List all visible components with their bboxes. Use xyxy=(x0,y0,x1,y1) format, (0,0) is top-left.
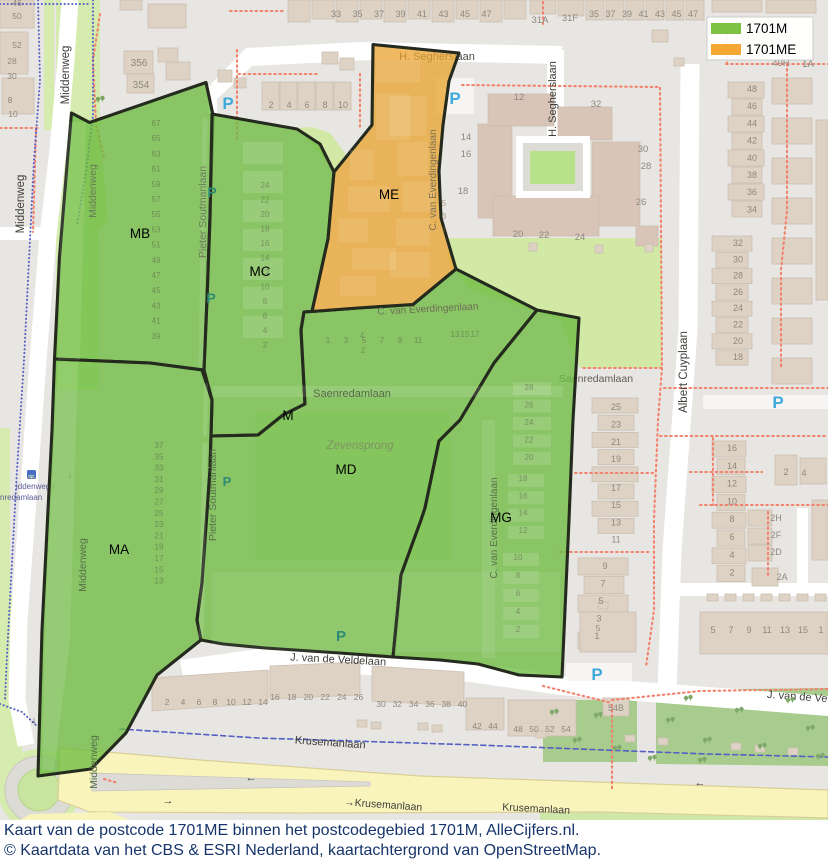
svg-text:34: 34 xyxy=(409,699,419,709)
svg-text:C. van Everdingenlaan: C. van Everdingenlaan xyxy=(428,129,439,230)
svg-text:22: 22 xyxy=(261,196,270,205)
svg-text:45: 45 xyxy=(152,286,161,295)
svg-text:2: 2 xyxy=(165,697,170,707)
svg-text:P: P xyxy=(449,89,460,108)
svg-text:P: P xyxy=(206,290,215,306)
svg-text:12: 12 xyxy=(242,697,252,707)
svg-text:19: 19 xyxy=(155,543,164,552)
svg-text:32: 32 xyxy=(393,699,403,709)
svg-text:30: 30 xyxy=(733,254,743,264)
svg-text:MB: MB xyxy=(130,226,150,241)
svg-text:P: P xyxy=(591,665,602,684)
svg-text:10: 10 xyxy=(226,697,236,707)
svg-text:48: 48 xyxy=(513,724,523,734)
svg-text:26: 26 xyxy=(354,692,364,702)
svg-text:34: 34 xyxy=(747,204,757,214)
svg-text:28: 28 xyxy=(641,161,652,172)
svg-text:27: 27 xyxy=(155,498,164,507)
svg-text:36: 36 xyxy=(747,187,757,197)
svg-text:2: 2 xyxy=(783,467,788,477)
svg-text:3: 3 xyxy=(344,336,349,345)
svg-text:9: 9 xyxy=(746,625,751,635)
svg-text:43: 43 xyxy=(438,9,448,19)
svg-text:356: 356 xyxy=(131,58,148,69)
svg-text:55: 55 xyxy=(152,210,161,219)
svg-text:6: 6 xyxy=(263,312,268,321)
svg-text:2: 2 xyxy=(729,568,734,578)
svg-text:24: 24 xyxy=(525,418,534,427)
svg-text:41: 41 xyxy=(417,9,427,19)
svg-text:54B: 54B xyxy=(608,703,624,713)
svg-text:22: 22 xyxy=(733,320,743,330)
svg-text:Pieter Soutmanlaan: Pieter Soutmanlaan xyxy=(207,449,219,541)
svg-text:28: 28 xyxy=(525,383,534,392)
svg-text:MG: MG xyxy=(490,510,512,525)
svg-text:31A: 31A xyxy=(532,15,550,26)
svg-text:28: 28 xyxy=(7,56,17,66)
svg-text:8: 8 xyxy=(213,697,218,707)
svg-text:39: 39 xyxy=(395,9,405,19)
svg-text:5: 5 xyxy=(442,199,447,208)
svg-text:11: 11 xyxy=(611,535,620,545)
svg-text:16: 16 xyxy=(519,491,528,500)
svg-text:17: 17 xyxy=(471,330,480,339)
svg-text:63: 63 xyxy=(152,149,161,158)
svg-text:7: 7 xyxy=(380,336,385,345)
svg-text:2: 2 xyxy=(516,625,521,634)
svg-text:6: 6 xyxy=(304,100,309,110)
svg-text:5: 5 xyxy=(598,596,603,606)
svg-text:20: 20 xyxy=(261,210,270,219)
svg-text:1: 1 xyxy=(818,625,823,635)
svg-text:17: 17 xyxy=(155,554,164,563)
svg-text:Middenweg: Middenweg xyxy=(77,538,89,592)
svg-text:P: P xyxy=(222,94,233,113)
svg-text:52: 52 xyxy=(12,40,22,50)
svg-text:4: 4 xyxy=(729,550,734,560)
svg-text:14: 14 xyxy=(261,254,270,263)
svg-text:7: 7 xyxy=(728,625,733,635)
svg-text:18: 18 xyxy=(287,692,297,702)
svg-text:15: 15 xyxy=(798,625,808,635)
svg-text:2: 2 xyxy=(361,346,366,355)
svg-text:Albert Cuyplaan: Albert Cuyplaan xyxy=(678,331,690,413)
svg-text:15: 15 xyxy=(155,565,164,574)
svg-text:21: 21 xyxy=(611,437,621,447)
svg-text:31F: 31F xyxy=(562,13,579,24)
svg-text:10: 10 xyxy=(514,553,523,562)
svg-text:P: P xyxy=(223,474,232,489)
svg-text:15: 15 xyxy=(461,330,470,339)
svg-text:10: 10 xyxy=(8,109,18,119)
svg-text:9: 9 xyxy=(602,561,607,571)
svg-text:26: 26 xyxy=(525,401,534,410)
svg-text:20: 20 xyxy=(513,229,524,240)
svg-text:14: 14 xyxy=(461,132,472,143)
svg-text:Middenweg: Middenweg xyxy=(60,46,72,105)
svg-text:37: 37 xyxy=(374,9,384,19)
svg-text:Saenredamlaan: Saenredamlaan xyxy=(313,388,391,400)
svg-text:44: 44 xyxy=(747,118,757,128)
svg-text:53: 53 xyxy=(152,225,161,234)
svg-text:40: 40 xyxy=(458,699,468,709)
svg-text:ME: ME xyxy=(379,187,399,202)
svg-text:2: 2 xyxy=(263,341,268,350)
svg-text:P: P xyxy=(207,184,216,200)
svg-text:18: 18 xyxy=(458,186,469,197)
svg-text:4: 4 xyxy=(516,607,521,616)
svg-text:10: 10 xyxy=(338,100,348,110)
svg-text:Zevensprong: Zevensprong xyxy=(325,440,394,452)
svg-text:6: 6 xyxy=(516,589,521,598)
svg-text:43: 43 xyxy=(152,301,161,310)
svg-text:6: 6 xyxy=(729,532,734,542)
svg-text:←: ← xyxy=(695,777,706,789)
svg-text:MD: MD xyxy=(336,462,357,477)
svg-text:4: 4 xyxy=(181,697,186,707)
svg-text:1A: 1A xyxy=(802,59,814,70)
svg-text:4: 4 xyxy=(360,331,365,340)
svg-text:8: 8 xyxy=(8,95,13,105)
svg-text:41: 41 xyxy=(152,317,161,326)
svg-text:1: 1 xyxy=(442,225,447,234)
svg-text:25: 25 xyxy=(155,509,164,518)
svg-text:47: 47 xyxy=(688,9,698,19)
svg-text:2A: 2A xyxy=(776,572,787,582)
svg-text:→: → xyxy=(163,795,174,807)
svg-text:23: 23 xyxy=(611,419,621,429)
svg-text:35: 35 xyxy=(589,9,599,19)
svg-text:37: 37 xyxy=(605,9,615,19)
svg-text:22: 22 xyxy=(539,230,550,241)
svg-text:39: 39 xyxy=(152,332,161,341)
svg-text:M: M xyxy=(282,408,293,423)
svg-text:8: 8 xyxy=(516,571,521,580)
svg-text:8: 8 xyxy=(322,100,327,110)
svg-text:35: 35 xyxy=(155,452,164,461)
svg-text:P: P xyxy=(772,393,783,412)
svg-text:9: 9 xyxy=(398,336,403,345)
svg-text:26: 26 xyxy=(733,287,743,297)
svg-text:65: 65 xyxy=(152,134,161,143)
svg-text:23: 23 xyxy=(155,520,164,529)
svg-text:36: 36 xyxy=(425,699,435,709)
svg-text:59: 59 xyxy=(152,180,161,189)
svg-text:1701ME: 1701ME xyxy=(746,42,796,57)
svg-text:44: 44 xyxy=(488,721,498,731)
svg-text:18: 18 xyxy=(519,474,528,483)
svg-text:45: 45 xyxy=(671,9,681,19)
svg-text:3: 3 xyxy=(596,614,601,624)
svg-text:38: 38 xyxy=(747,170,757,180)
svg-text:30: 30 xyxy=(376,699,386,709)
svg-text:10: 10 xyxy=(261,283,270,292)
svg-text:5: 5 xyxy=(596,623,601,633)
svg-text:🚌: 🚌 xyxy=(28,474,36,480)
svg-text:18: 18 xyxy=(261,225,270,234)
svg-text:18: 18 xyxy=(733,352,743,362)
svg-text:46: 46 xyxy=(747,101,757,111)
svg-text:6: 6 xyxy=(197,697,202,707)
svg-text:25: 25 xyxy=(611,402,621,412)
svg-text:Middenweg: Middenweg xyxy=(88,735,100,789)
svg-text:1: 1 xyxy=(326,336,331,345)
svg-text:16: 16 xyxy=(461,149,472,160)
svg-text:3: 3 xyxy=(442,212,447,221)
svg-text:54: 54 xyxy=(561,724,571,734)
svg-text:354: 354 xyxy=(133,80,150,91)
svg-text:2: 2 xyxy=(268,100,273,110)
svg-text:30: 30 xyxy=(7,71,17,81)
svg-text:H. Segherslaan: H. Segherslaan xyxy=(547,61,559,137)
svg-text:16: 16 xyxy=(727,443,737,453)
svg-text:2D: 2D xyxy=(770,547,782,557)
svg-text:16: 16 xyxy=(261,239,270,248)
svg-text:P: P xyxy=(336,628,346,645)
svg-text:24: 24 xyxy=(733,303,743,313)
svg-text:12: 12 xyxy=(727,479,737,489)
svg-text:22: 22 xyxy=(525,436,534,445)
svg-text:1701M: 1701M xyxy=(746,21,787,36)
svg-text:20: 20 xyxy=(304,692,314,702)
svg-text:←: ← xyxy=(246,772,257,784)
svg-text:12: 12 xyxy=(514,92,525,103)
svg-text:30: 30 xyxy=(638,144,649,155)
svg-text:47: 47 xyxy=(152,271,161,280)
svg-text:2H: 2H xyxy=(770,513,782,523)
svg-text:43: 43 xyxy=(655,9,665,19)
svg-text:MC: MC xyxy=(250,264,271,279)
svg-text:11: 11 xyxy=(414,336,423,345)
svg-text:48: 48 xyxy=(747,84,757,94)
svg-text:33: 33 xyxy=(331,9,341,19)
svg-text:47: 47 xyxy=(481,9,491,19)
svg-text:38: 38 xyxy=(441,699,451,709)
svg-text:46: 46 xyxy=(12,0,22,8)
svg-text:13: 13 xyxy=(611,517,621,527)
svg-text:50: 50 xyxy=(12,11,22,21)
svg-text:52: 52 xyxy=(545,724,555,734)
svg-text:Middenweg: Middenweg xyxy=(15,175,27,234)
svg-text:33: 33 xyxy=(155,464,164,473)
svg-text:20: 20 xyxy=(733,336,743,346)
svg-text:4: 4 xyxy=(801,468,806,478)
svg-text:19: 19 xyxy=(611,454,621,464)
svg-text:4: 4 xyxy=(263,326,268,335)
svg-text:67: 67 xyxy=(152,119,161,128)
svg-text:↓: ↓ xyxy=(32,715,37,725)
svg-text:28: 28 xyxy=(733,271,743,281)
svg-text:MA: MA xyxy=(109,542,129,557)
svg-text:17: 17 xyxy=(611,483,621,493)
svg-text:13: 13 xyxy=(155,577,164,586)
svg-text:11: 11 xyxy=(762,625,771,635)
svg-text:37: 37 xyxy=(155,441,164,450)
svg-text:14: 14 xyxy=(727,461,737,471)
svg-text:12: 12 xyxy=(519,526,528,535)
svg-text:14: 14 xyxy=(519,509,528,518)
svg-text:13: 13 xyxy=(780,625,790,635)
svg-text:40: 40 xyxy=(747,153,757,163)
svg-text:42: 42 xyxy=(747,136,757,146)
svg-text:5: 5 xyxy=(710,625,715,635)
svg-text:24: 24 xyxy=(575,232,586,243)
svg-text:41: 41 xyxy=(638,9,648,19)
svg-text:32: 32 xyxy=(733,238,743,248)
svg-text:8: 8 xyxy=(263,297,268,306)
svg-text:22: 22 xyxy=(320,692,330,702)
svg-text:31: 31 xyxy=(155,475,164,484)
svg-text:20: 20 xyxy=(525,453,534,462)
svg-text:C. van Everdingenlaan: C. van Everdingenlaan xyxy=(489,477,500,578)
svg-text:24: 24 xyxy=(337,692,347,702)
svg-text:Pieter Soutmanlaan: Pieter Soutmanlaan xyxy=(197,166,209,258)
svg-text:7: 7 xyxy=(600,579,605,589)
svg-text:13: 13 xyxy=(451,330,460,339)
svg-text:32: 32 xyxy=(591,99,602,110)
svg-text:10: 10 xyxy=(727,496,737,506)
svg-text:8: 8 xyxy=(729,514,734,524)
svg-text:16: 16 xyxy=(270,692,280,702)
svg-text:4: 4 xyxy=(286,100,291,110)
svg-text:15: 15 xyxy=(611,500,621,510)
svg-text:39: 39 xyxy=(622,9,632,19)
svg-text:2F: 2F xyxy=(771,530,782,540)
svg-text:42: 42 xyxy=(472,721,482,731)
svg-text:51: 51 xyxy=(152,241,161,250)
svg-text:nredamlaan: nredamlaan xyxy=(0,493,42,502)
svg-text:35: 35 xyxy=(352,9,362,19)
svg-text:29: 29 xyxy=(155,486,164,495)
svg-text:24: 24 xyxy=(261,181,270,190)
svg-text:Middenweg: Middenweg xyxy=(87,164,99,218)
svg-text:21: 21 xyxy=(155,531,164,540)
svg-text:45: 45 xyxy=(460,9,470,19)
svg-text:61: 61 xyxy=(152,165,161,174)
svg-text:50: 50 xyxy=(529,724,539,734)
svg-text:14: 14 xyxy=(258,697,268,707)
svg-text:49: 49 xyxy=(152,256,161,265)
svg-text:26: 26 xyxy=(636,197,647,208)
svg-text:57: 57 xyxy=(152,195,161,204)
